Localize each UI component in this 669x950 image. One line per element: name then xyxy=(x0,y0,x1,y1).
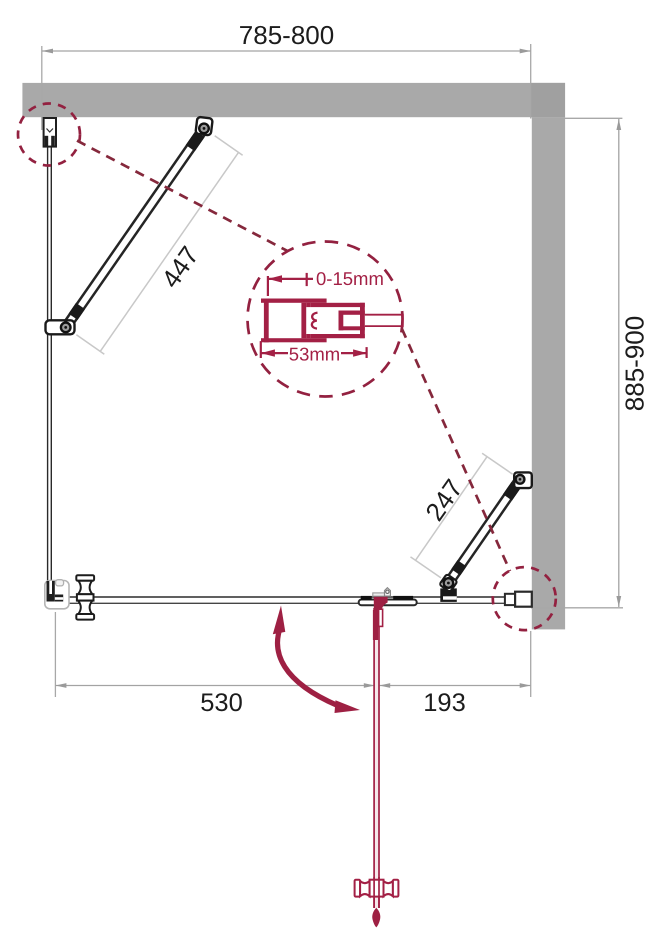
svg-text:785-800: 785-800 xyxy=(239,20,334,50)
svg-text:530: 530 xyxy=(200,689,243,717)
svg-text:53mm: 53mm xyxy=(289,344,340,365)
svg-text:193: 193 xyxy=(423,689,466,717)
svg-text:885-900: 885-900 xyxy=(620,316,650,411)
svg-text:0-15mm: 0-15mm xyxy=(316,268,384,289)
